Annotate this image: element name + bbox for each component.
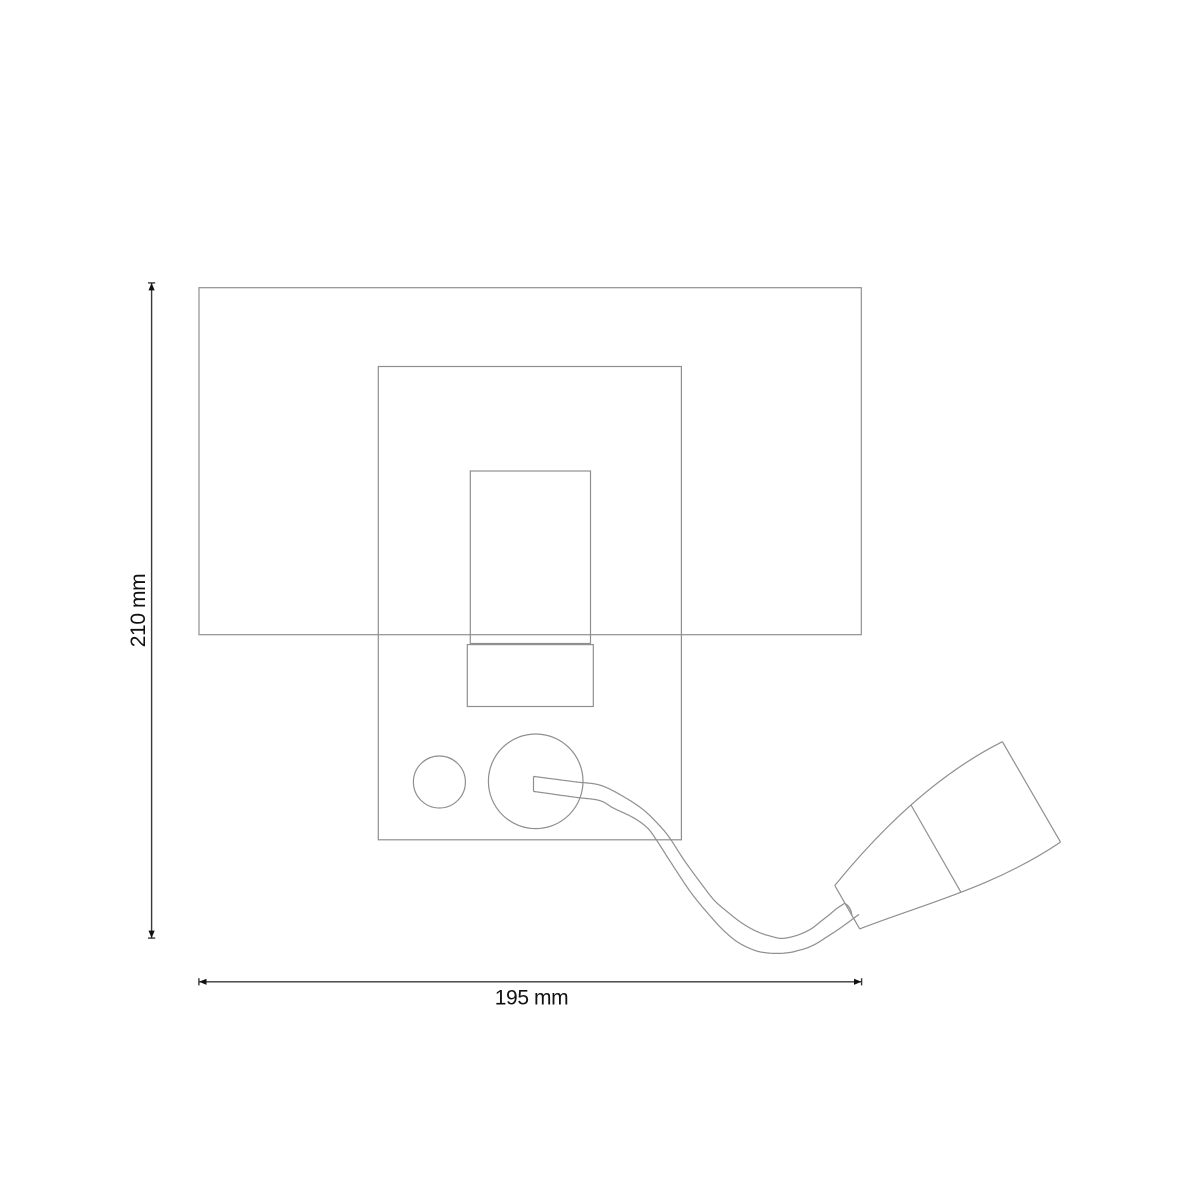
svg-text:195 mm: 195 mm	[495, 987, 568, 1010]
svg-text:210 mm: 210 mm	[127, 574, 150, 647]
